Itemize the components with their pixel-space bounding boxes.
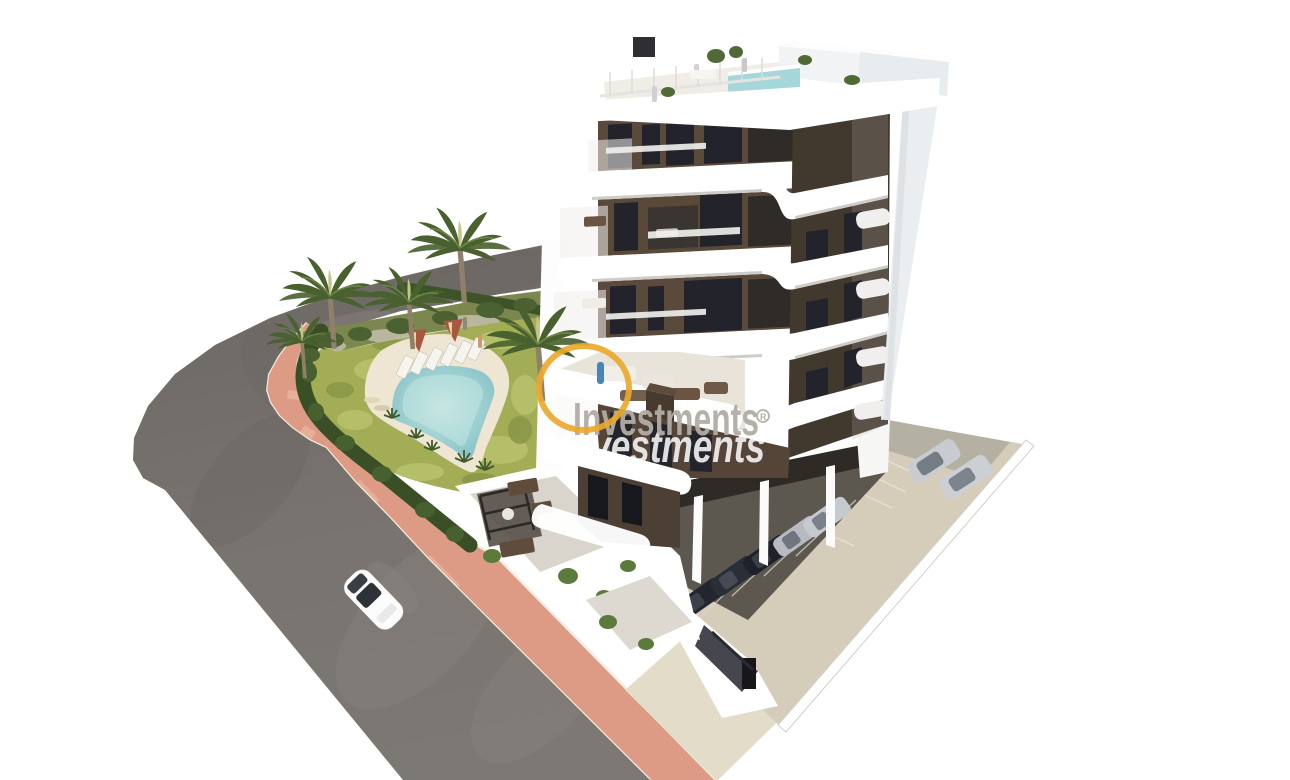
svg-text:Investments: Investments [573,393,759,445]
svg-text:R: R [760,412,767,422]
